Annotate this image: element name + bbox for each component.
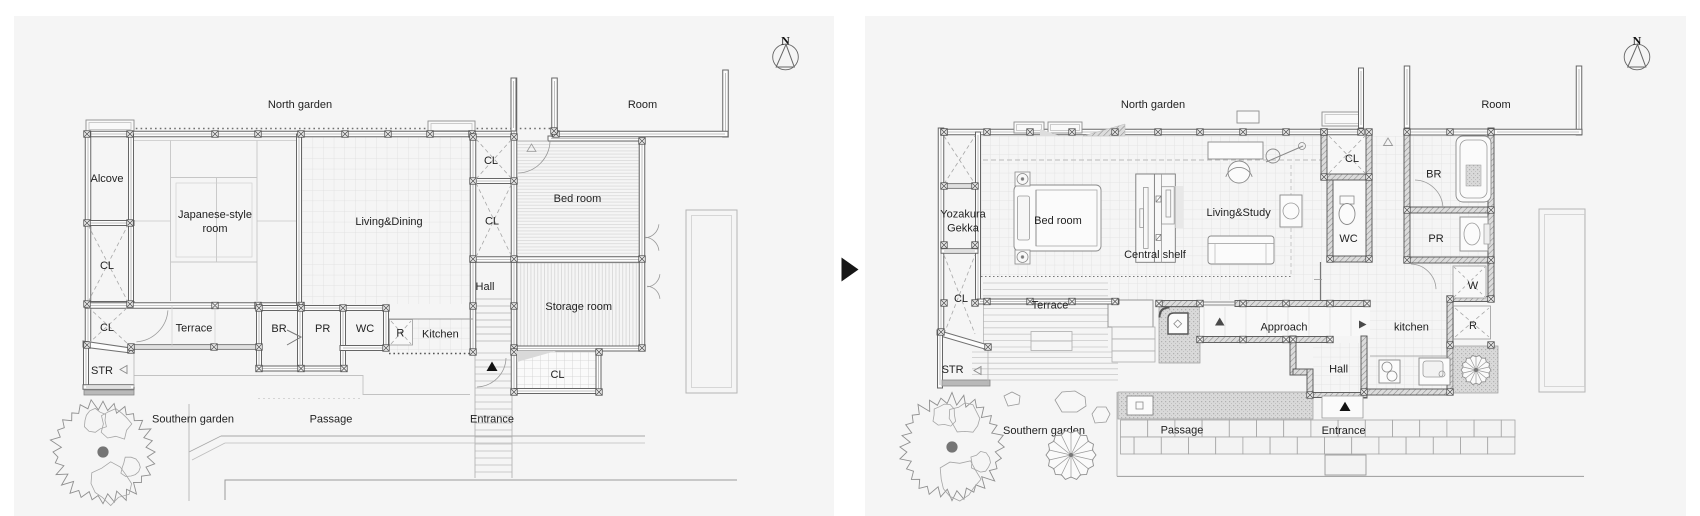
svg-text:CL: CL — [1345, 153, 1359, 165]
svg-text:Yozakura: Yozakura — [940, 209, 986, 221]
svg-text:PR: PR — [1428, 233, 1443, 245]
svg-text:kitchen: kitchen — [1394, 322, 1429, 334]
svg-text:STR: STR — [91, 365, 113, 377]
svg-text:CL: CL — [954, 293, 968, 305]
svg-text:Japanese-style: Japanese-style — [178, 209, 252, 221]
svg-text:CL: CL — [100, 322, 114, 334]
svg-text:Room: Room — [1481, 99, 1510, 111]
svg-text:Approach: Approach — [1260, 322, 1307, 334]
svg-text:N: N — [781, 34, 790, 48]
svg-text:R: R — [1469, 320, 1477, 332]
svg-text:Hall: Hall — [1329, 364, 1348, 376]
svg-text:CL: CL — [484, 155, 498, 167]
svg-text:PR: PR — [315, 323, 330, 335]
svg-text:North garden: North garden — [1121, 99, 1185, 111]
svg-text:Passage: Passage — [310, 414, 353, 426]
svg-text:N: N — [1633, 34, 1642, 48]
svg-text:Alcove: Alcove — [90, 173, 123, 185]
svg-text:Living&Dining: Living&Dining — [355, 216, 422, 228]
svg-text:Entrance: Entrance — [1322, 425, 1366, 437]
svg-text:BR: BR — [271, 323, 286, 335]
svg-text:W: W — [1468, 280, 1479, 292]
svg-text:CL: CL — [485, 216, 499, 228]
svg-text:Southern garden: Southern garden — [152, 414, 234, 426]
svg-text:Entrance: Entrance — [470, 414, 514, 426]
svg-text:Room: Room — [628, 99, 657, 111]
svg-text:Living&Study: Living&Study — [1206, 207, 1271, 219]
svg-text:Bed room: Bed room — [554, 193, 602, 205]
svg-text:Central shelf: Central shelf — [1124, 249, 1187, 261]
svg-text:R: R — [396, 328, 404, 340]
svg-text:CL: CL — [100, 260, 114, 272]
svg-text:North garden: North garden — [268, 99, 332, 111]
svg-text:room: room — [202, 223, 227, 235]
svg-text:Gekka: Gekka — [947, 223, 980, 235]
svg-text:Storage room: Storage room — [545, 301, 612, 313]
svg-text:Passage: Passage — [1161, 425, 1204, 437]
svg-text:BR: BR — [1426, 169, 1441, 181]
svg-text:Terrace: Terrace — [1032, 300, 1069, 312]
svg-text:WC: WC — [356, 323, 374, 335]
svg-text:WC: WC — [1339, 233, 1357, 245]
svg-text:Bed room: Bed room — [1034, 215, 1082, 227]
svg-text:Kitchen: Kitchen — [422, 329, 459, 341]
svg-text:Terrace: Terrace — [176, 323, 213, 335]
svg-text:STR: STR — [942, 364, 964, 376]
svg-text:CL: CL — [550, 369, 564, 381]
svg-text:Hall: Hall — [476, 281, 495, 293]
